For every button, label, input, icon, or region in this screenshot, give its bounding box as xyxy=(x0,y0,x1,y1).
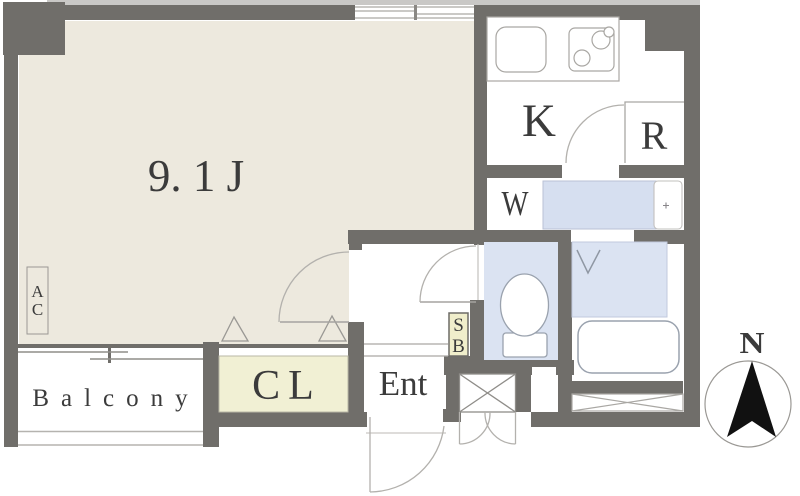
svg-text:C: C xyxy=(32,300,43,319)
svg-text:N: N xyxy=(740,325,765,360)
svg-text:S: S xyxy=(453,315,464,336)
svg-text:R: R xyxy=(641,113,668,158)
svg-text:A: A xyxy=(31,282,44,301)
svg-text:B: B xyxy=(452,336,465,357)
svg-text:W: W xyxy=(502,184,529,223)
svg-text:Balcony: Balcony xyxy=(32,385,199,412)
svg-text:Ent: Ent xyxy=(379,364,428,403)
svg-text:9. 1 J: 9. 1 J xyxy=(148,151,244,201)
svg-text:K: K xyxy=(522,95,556,147)
svg-text:CL: CL xyxy=(252,363,322,409)
